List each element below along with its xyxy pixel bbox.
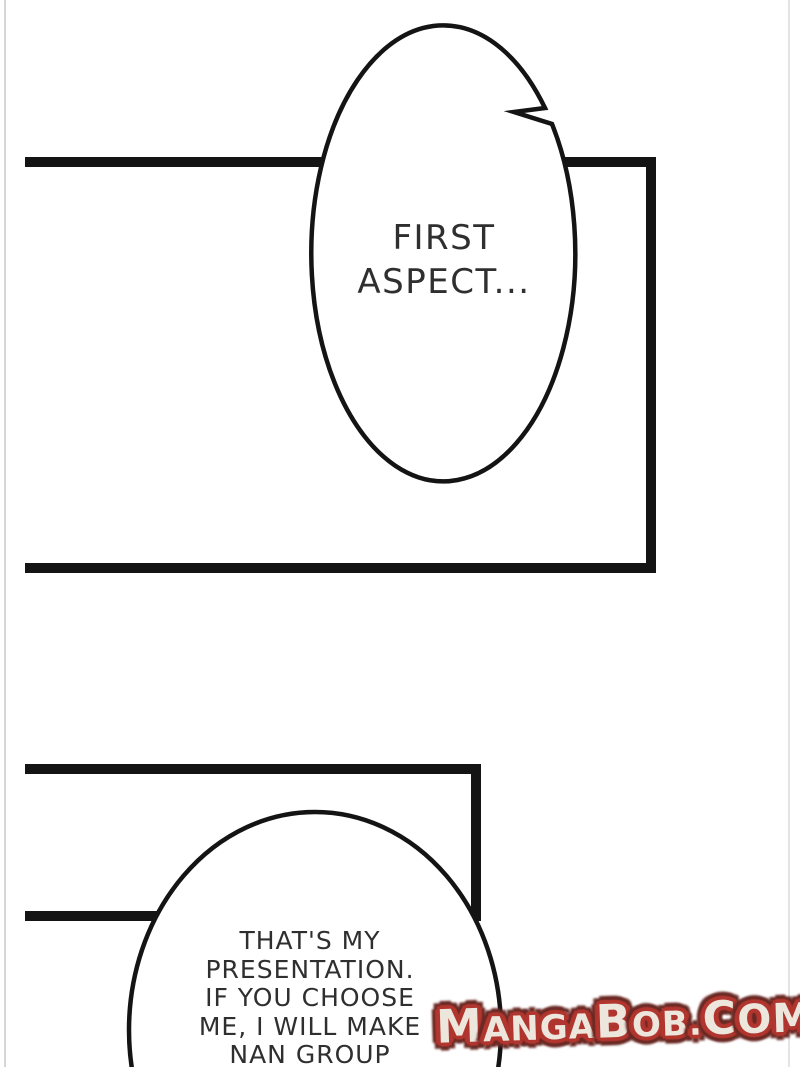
logo-segment: . [688, 1003, 703, 1043]
logo-segment: ANGA [482, 1007, 596, 1051]
logo-segment: C [702, 990, 738, 1045]
bubble-line: ASPECT... [284, 260, 604, 304]
bubble-line: THAT'S MY [125, 927, 495, 956]
manga-page: FIRST ASPECT... THAT'S MY PRESENTATION. … [0, 0, 800, 1067]
logo-segment: OB [631, 1004, 689, 1046]
page-edge-right [788, 0, 790, 1067]
bubble-line: PRESENTATION. [125, 956, 495, 985]
watermark-logo: M ANGA B OB . C OM [435, 988, 800, 1054]
logo-segment: M [435, 998, 483, 1053]
page-edge-left [4, 0, 6, 1067]
logo-segment: OM [737, 995, 800, 1043]
bubble-line: FIRST [284, 216, 604, 260]
artwork-svg [0, 0, 800, 1067]
logo-segment: B [595, 994, 633, 1049]
bubble-1-text: FIRST ASPECT... [284, 216, 604, 304]
